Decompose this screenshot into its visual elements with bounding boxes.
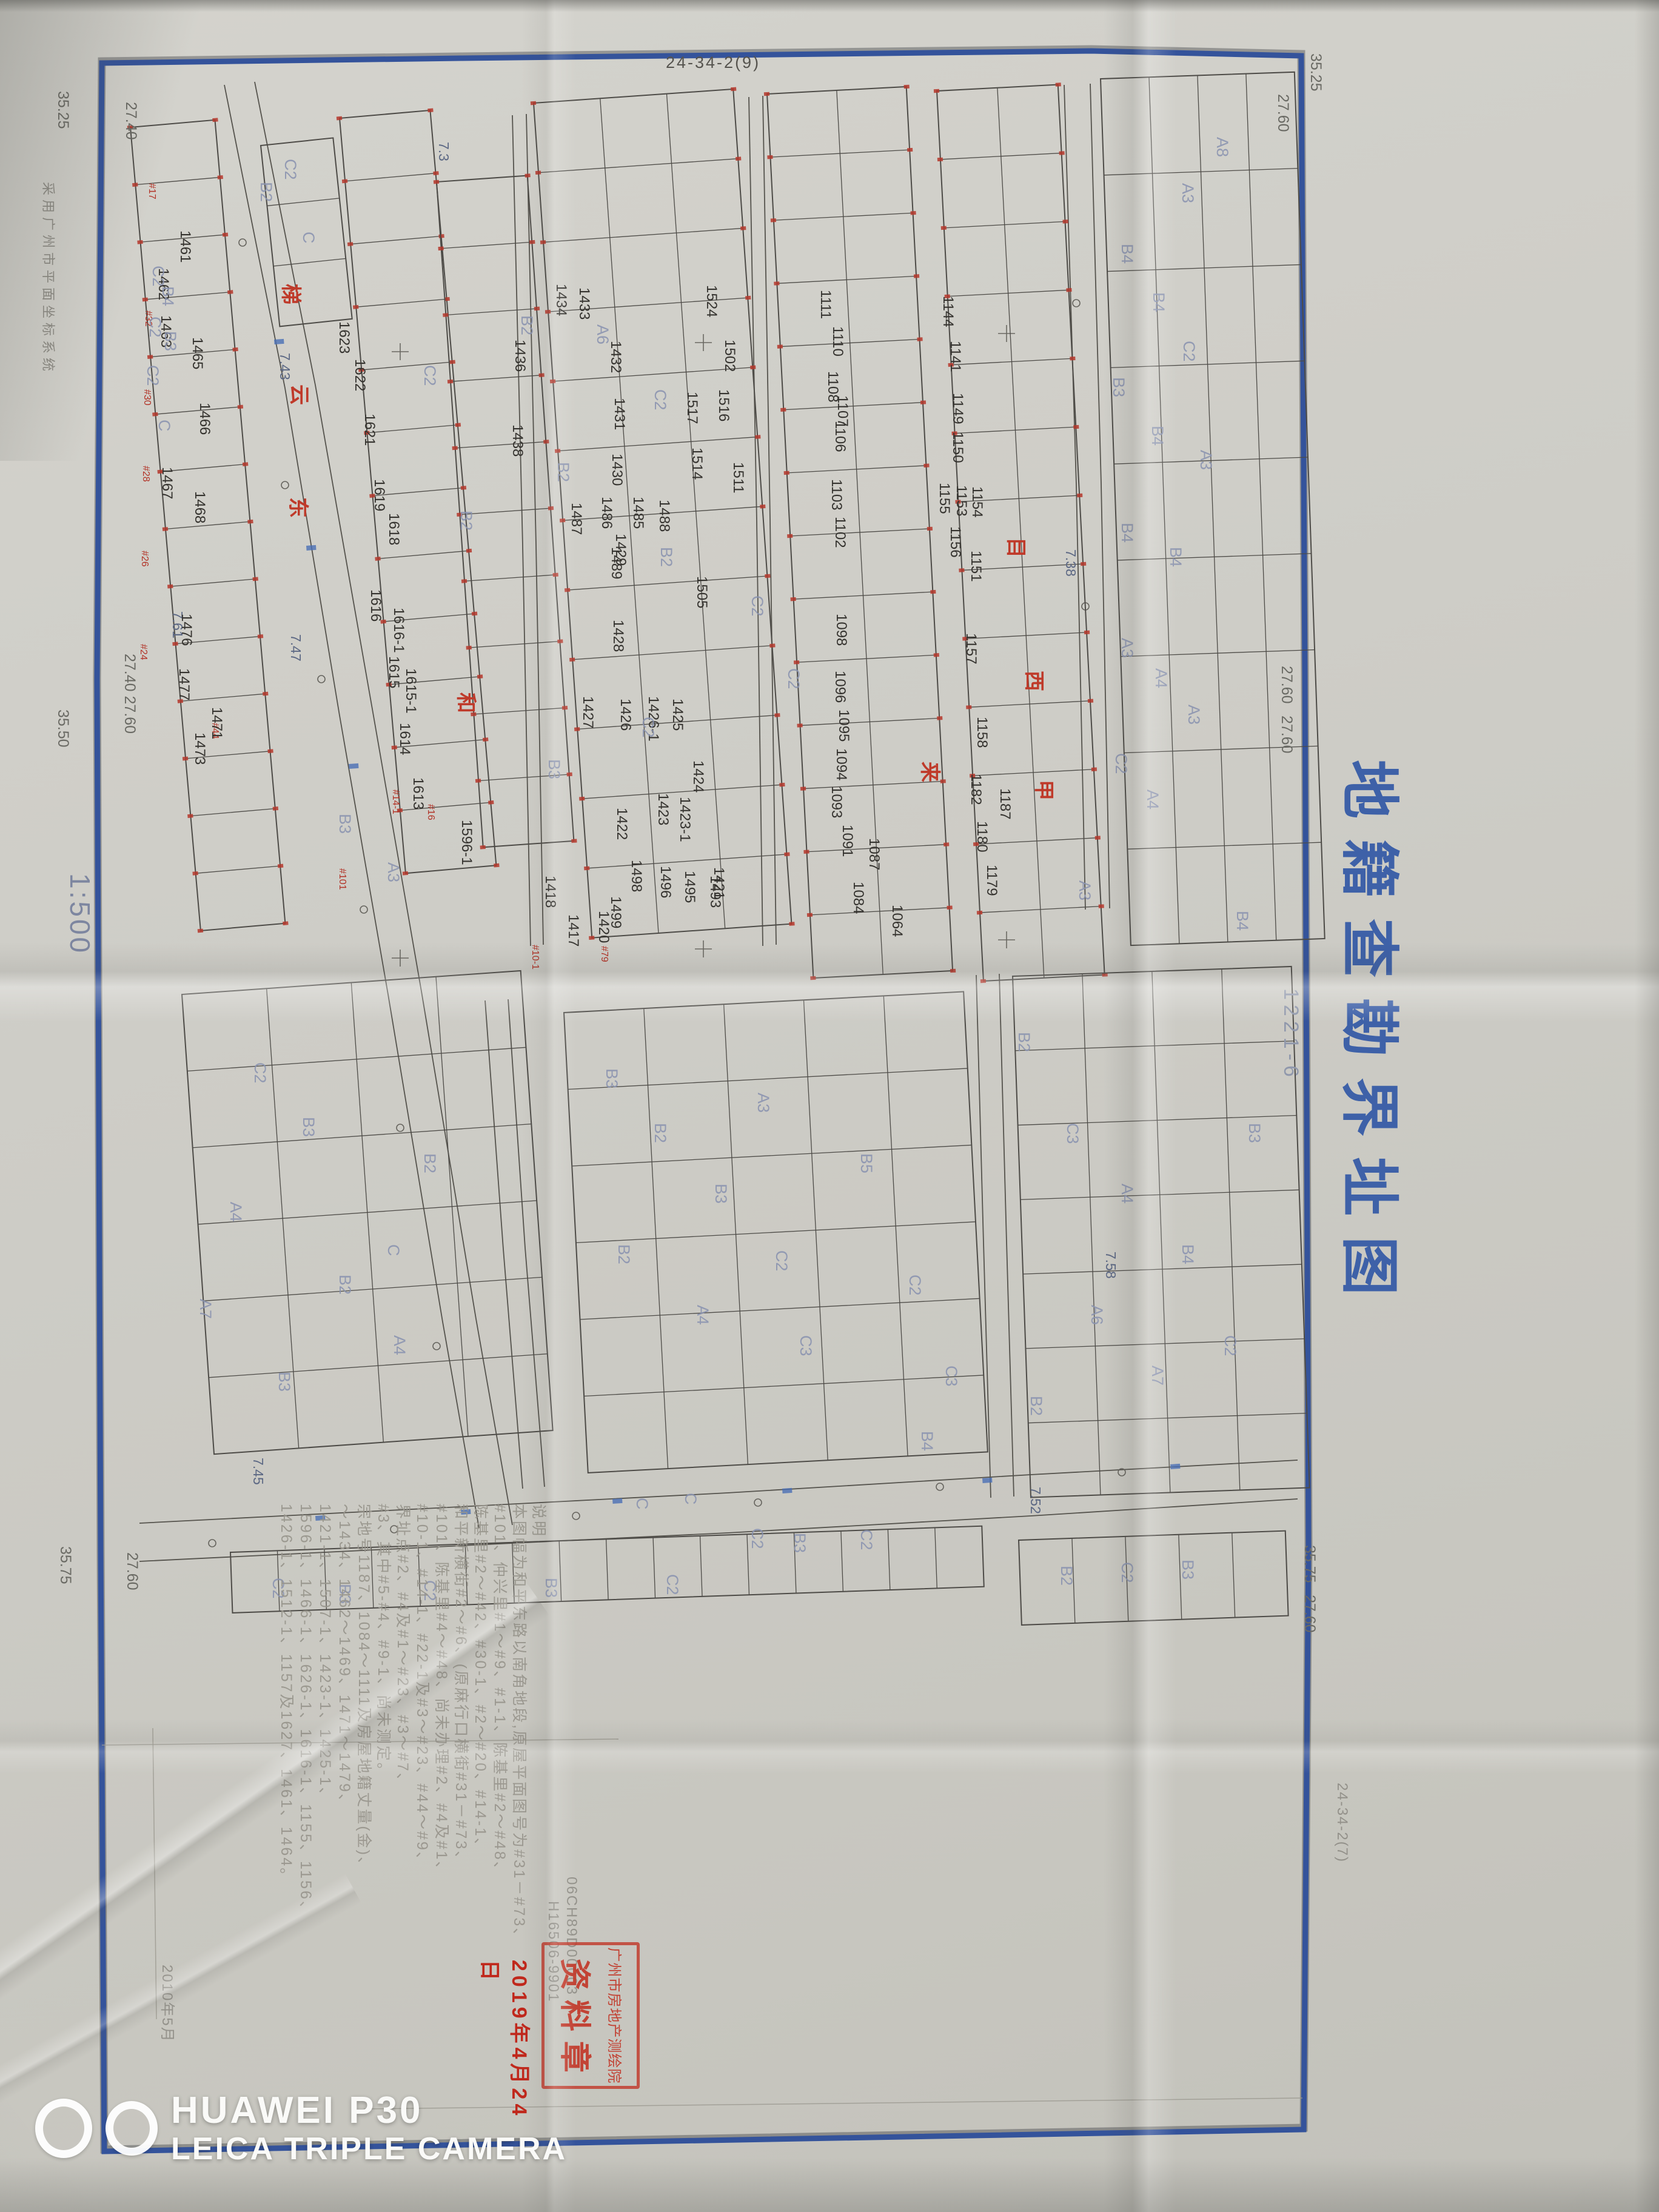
road-edge	[1064, 85, 1085, 910]
boundary-mark	[475, 779, 481, 783]
map-label: 1430	[609, 454, 625, 486]
cadastral-map-svg: 35.2527.4035.5027.40 27.6035.7527.6035.2…	[0, 0, 1659, 2212]
boundary-mark	[934, 89, 939, 93]
map-sheet-code: 1221-6	[1278, 988, 1302, 1128]
map-label: #79	[599, 946, 609, 962]
map-label: 1471	[209, 707, 225, 739]
survey-note-line: #101、仲兴里#1～#9、#1-1、陈基里#2～#48、	[491, 1504, 508, 1879]
boundary-mark	[142, 298, 148, 302]
boundary-mark	[152, 412, 158, 417]
boundary-mark	[238, 405, 243, 409]
boundary-mark	[1091, 767, 1097, 771]
map-label: A8	[1213, 137, 1232, 157]
boundary-mark	[438, 234, 444, 238]
boundary-mark	[480, 845, 486, 850]
map-label: C2	[1180, 341, 1198, 362]
map-label: C2	[748, 1528, 766, 1549]
map-label: 1110	[829, 326, 846, 357]
map-label: #10-1	[530, 945, 540, 970]
map-label: 1157	[963, 633, 979, 665]
map-label: C2	[639, 717, 657, 738]
map-label: #14-1	[390, 789, 401, 814]
map-label: #16	[426, 804, 436, 820]
boundary-mark	[447, 380, 453, 384]
boundary-mark	[552, 573, 558, 577]
boundary-mark	[438, 246, 443, 250]
stamp-label: 资料章	[555, 1949, 600, 2082]
map-label: B2	[1027, 1396, 1045, 1416]
map-label: C2	[663, 1574, 682, 1595]
road-edge	[999, 974, 1014, 1496]
map-label: 1141	[947, 341, 964, 372]
road-mark	[1170, 1464, 1181, 1469]
map-label: B4	[1179, 1244, 1197, 1264]
survey-notes: 说明本图幅为和平东路以南角地段,原屋平面图号为#31－#73、#101、仲兴里#…	[278, 1504, 547, 1945]
map-label: 1438	[509, 424, 526, 457]
boundary-mark	[765, 574, 770, 578]
boundary-mark	[550, 380, 555, 384]
boundary-mark	[1095, 836, 1101, 839]
map-label: 27.40	[122, 102, 139, 140]
boundary-mark	[947, 906, 952, 910]
map-label: 1498	[628, 860, 645, 892]
road-edge	[749, 97, 763, 946]
boundary-mark	[977, 911, 982, 914]
map-label: 1431	[611, 398, 628, 430]
road-dot	[239, 239, 246, 246]
boundary-mark	[466, 549, 472, 553]
survey-note-line: 宗地号1187、1084～1111及房屋地籍丈量(金)、	[355, 1504, 372, 1874]
boundary-mark	[937, 716, 942, 720]
boundary-mark	[132, 183, 138, 187]
map-label: B2	[518, 315, 536, 335]
boundary-mark	[375, 557, 380, 561]
boundary-mark	[342, 179, 347, 183]
map-label: 1514	[689, 447, 705, 480]
map-label: B3	[336, 814, 354, 834]
parcel-block	[764, 85, 956, 980]
map-label: 1151	[968, 551, 984, 582]
map-label: 1493	[707, 876, 723, 908]
boundary-mark	[137, 240, 142, 244]
road-edge	[1090, 84, 1110, 908]
map-label: C3	[942, 1366, 960, 1387]
map-label: A4	[1152, 668, 1170, 688]
road-dot	[1073, 300, 1080, 307]
boundary-mark	[771, 218, 776, 222]
boundary-mark	[941, 226, 947, 230]
map-label: B4	[1118, 244, 1136, 264]
boundary-mark	[232, 347, 238, 352]
map-label: A3	[1179, 183, 1197, 203]
boundary-mark	[923, 464, 929, 468]
map-label: 1461	[177, 230, 193, 263]
map-label: C2	[785, 668, 803, 689]
map-label: 1619	[371, 479, 387, 511]
map-label: B2	[457, 511, 475, 531]
map-label: 云	[287, 384, 310, 405]
road-dot	[281, 481, 289, 489]
map-label: 24-34-2(9)	[666, 53, 760, 72]
map-label: 1096	[832, 671, 848, 703]
map-label: 35.75	[1301, 1545, 1318, 1583]
map-label: 1621	[361, 414, 378, 446]
map-label: C2	[857, 1529, 876, 1550]
boundary-mark	[907, 148, 913, 152]
boundary-mark	[774, 713, 780, 717]
map-label: 1144	[940, 296, 956, 327]
boundary-mark	[258, 634, 263, 638]
boundary-mark	[147, 355, 153, 359]
boundary-mark	[784, 853, 789, 857]
map-label: 西	[1022, 671, 1045, 691]
boundary-mark	[560, 518, 565, 523]
boundary-mark	[565, 588, 570, 592]
map-label: 7.43	[277, 353, 293, 380]
map-label: 1623	[336, 321, 352, 354]
map-label: 1615	[386, 656, 402, 688]
map-label: C2	[651, 389, 669, 411]
map-label: 1485	[630, 497, 646, 529]
parcel-block	[434, 173, 577, 849]
map-label: 1084	[850, 882, 866, 914]
boundary-mark	[353, 305, 358, 309]
boundary-mark	[243, 462, 248, 466]
map-title-char: 查	[1330, 917, 1409, 980]
boundary-mark	[750, 366, 756, 370]
survey-note-line: 陈基里#2～#42、#30-1、#2～#20、#14-1、	[472, 1504, 489, 1855]
map-label: 梯	[279, 284, 302, 304]
boundary-mark	[548, 506, 554, 511]
map-label: 1596-1	[458, 820, 475, 865]
boundary-mark	[774, 281, 779, 285]
map-label: 东	[286, 497, 310, 518]
map-label: A4	[227, 1202, 245, 1222]
map-label: 27.40 27.60	[121, 654, 138, 734]
map-title-char: 勘	[1330, 996, 1409, 1059]
boundary-mark	[531, 101, 536, 106]
map-label: 1187	[997, 788, 1013, 820]
lens-ring-icon	[35, 2099, 92, 2158]
boundary-mark	[760, 504, 765, 509]
map-label: 1427	[580, 696, 596, 728]
boundary-mark	[557, 639, 563, 643]
watermark-camera: LEICA TRIPLE CAMERA	[171, 2131, 567, 2167]
map-label: 1094	[833, 748, 850, 780]
boundary-mark	[1059, 151, 1064, 155]
boundary-mark	[187, 814, 193, 818]
map-label: C2	[748, 595, 766, 617]
survey-note-line: #101、陈基里#4～#48、尚未办理#2、#4及#1、	[433, 1504, 450, 1879]
boundary-mark	[736, 156, 741, 161]
map-label: C	[384, 1244, 403, 1256]
map-label: 1095	[836, 709, 852, 742]
map-label: 1434	[553, 284, 569, 316]
survey-note-line: 1596-1、1466-1、1626-1、1616-1、1155、1156、	[297, 1504, 314, 1918]
boundary-mark	[212, 118, 218, 122]
map-label: 1153	[953, 485, 970, 517]
map-label: 1154	[969, 486, 985, 518]
boundary-mark	[764, 92, 769, 96]
photo-of-cadastral-map: 35.2527.4035.5027.40 27.6035.7527.6035.2…	[0, 0, 1659, 2212]
map-label: A6	[1088, 1305, 1106, 1325]
boundary-mark	[540, 240, 546, 244]
map-label: B4	[1167, 547, 1185, 567]
boundary-mark	[1088, 699, 1093, 703]
map-label: 1106	[832, 421, 848, 452]
boundary-mark	[461, 486, 466, 490]
map-label: 1425	[669, 699, 686, 731]
road-dot	[397, 1124, 404, 1131]
map-label: 1093	[828, 786, 845, 818]
survey-note-line: 界址点#2、#4及#1～#23、#3～#7、	[394, 1504, 411, 1790]
boundary-mark	[273, 806, 278, 811]
boundary-mark	[810, 976, 816, 980]
map-label: B3	[1245, 1123, 1264, 1143]
boundary-mark	[192, 871, 198, 876]
map-label: B3	[1110, 377, 1128, 397]
boundary-mark	[535, 170, 541, 175]
map-label: 1486	[598, 497, 615, 529]
boundary-mark	[477, 674, 483, 679]
map-label: B4	[1148, 426, 1167, 446]
boundary-mark	[803, 850, 809, 854]
boundary-mark	[920, 400, 926, 404]
map-label: 1179	[984, 865, 1000, 896]
boundary-mark	[392, 745, 397, 749]
map-label: #17	[147, 183, 157, 199]
boundary-mark	[461, 579, 467, 583]
map-label: 采用广州市平面坐标系统	[41, 182, 56, 375]
lens-ring-icon-2	[106, 2101, 158, 2156]
map-label: A3	[384, 862, 403, 882]
map-label: B3	[1179, 1560, 1197, 1580]
map-label: B2	[257, 182, 275, 202]
map-title-char: 地	[1330, 758, 1409, 821]
boundary-mark	[780, 408, 786, 412]
survey-note-line: 本图幅为和平东路以南角地段,原屋平面图号为#31－#73、	[511, 1504, 528, 1945]
boundary-mark	[198, 929, 203, 933]
map-label: 1155	[936, 483, 953, 514]
boundary-mark	[584, 866, 589, 871]
boundary-mark	[555, 449, 560, 453]
map-label: 2010年5月	[159, 1965, 175, 2043]
map-label: B4	[1150, 292, 1168, 312]
map-label: A4	[1144, 789, 1162, 809]
road-edge	[508, 999, 545, 1487]
map-label: B2	[554, 462, 572, 482]
map-label: A7	[1148, 1366, 1167, 1386]
stamp-organization: 广州市房地产测绘院	[605, 1948, 626, 2084]
map-label: 1618	[386, 513, 402, 545]
map-label: 1423	[655, 793, 671, 825]
map-label: C3	[797, 1335, 815, 1356]
boundary-mark	[980, 979, 986, 983]
boundary-mark	[434, 180, 439, 184]
survey-note-line: 1426-1、1512-1、1157及1627、1461、1464。	[278, 1504, 295, 1885]
map-label: C	[300, 232, 318, 244]
road-mark	[612, 1498, 623, 1504]
boundary-mark	[1062, 220, 1068, 223]
map-label: B3	[300, 1117, 318, 1137]
map-label: B4	[1233, 911, 1252, 931]
boundary-mark	[525, 173, 530, 178]
map-label: 1428	[610, 620, 626, 652]
boundary-mark	[1081, 562, 1086, 566]
survey-note-line: ～1434、1462～1469、1471～1479、	[336, 1504, 353, 1811]
map-label: 1150	[950, 432, 966, 463]
map-label: 7.45	[250, 1458, 266, 1485]
boundary-mark	[966, 705, 971, 709]
map-label: B3	[791, 1533, 809, 1553]
map-label: 35.50	[55, 709, 72, 748]
parcel-block	[337, 109, 500, 876]
boundary-mark	[545, 310, 551, 314]
grid-crosses	[392, 325, 1015, 967]
map-label: A3	[1197, 450, 1215, 470]
map-label: 1473	[192, 732, 208, 765]
parcel-block	[1013, 967, 1310, 1498]
map-label: 1466	[196, 403, 213, 435]
map-label: C2	[281, 159, 300, 180]
boundary-mark	[449, 360, 455, 364]
map-label: 1158	[974, 717, 990, 748]
boundary-mark	[927, 527, 933, 531]
boundary-mark	[914, 274, 919, 278]
map-label: 1098	[833, 614, 850, 646]
map-label: B2	[1015, 1032, 1033, 1052]
boundary-mark	[797, 723, 802, 727]
map-title: 地籍查勘界址图	[1338, 749, 1401, 1305]
map-label: B3	[545, 759, 563, 779]
map-label: C2	[149, 266, 167, 287]
road-mark	[982, 1478, 993, 1483]
boundary-mark	[529, 240, 535, 244]
boundary-mark	[483, 737, 488, 742]
map-label: 1496	[657, 866, 674, 898]
map-label: B3	[542, 1578, 560, 1598]
parcel-blocks	[127, 72, 1325, 1625]
map-label: 1422	[614, 808, 630, 840]
map-label: C2	[144, 365, 162, 386]
map-label: B2	[336, 1275, 354, 1295]
map-label: 1616-1	[390, 608, 407, 653]
map-label: C2	[1221, 1335, 1239, 1356]
map-label: C	[682, 1493, 700, 1505]
map-label: #28	[141, 466, 151, 482]
boundary-mark	[223, 233, 228, 237]
boundary-mark	[1077, 494, 1082, 497]
map-label: 24-34-2(7)	[1334, 1783, 1350, 1863]
road-dot	[936, 1483, 943, 1490]
map-label: 1433	[576, 287, 592, 320]
map-label: B4	[918, 1431, 936, 1451]
map-label: B2	[1057, 1566, 1076, 1586]
boundary-mark	[740, 226, 746, 230]
map-label: 1613	[410, 777, 426, 809]
map-label: 目	[1004, 537, 1027, 558]
map-label: 1087	[866, 838, 882, 870]
boundary-mark	[494, 863, 499, 868]
map-label: 1505	[694, 576, 710, 608]
map-label: C2	[1112, 753, 1130, 774]
map-label: 1488	[656, 500, 672, 532]
map-label: 1467	[159, 467, 175, 499]
map-labels: 35.2527.4035.5027.40 27.6035.7527.6035.2…	[41, 53, 1350, 2043]
map-label: 1517	[684, 392, 700, 424]
road-dot	[572, 1512, 580, 1520]
map-label: B3	[161, 331, 179, 351]
map-label: 7.58	[1103, 1252, 1119, 1279]
map-label: 7.38	[1063, 549, 1079, 577]
map-label: #26	[139, 551, 150, 567]
map-label: 35.25	[1307, 53, 1324, 92]
map-label: A3	[1185, 705, 1203, 725]
road-dot	[209, 1540, 216, 1547]
boundary-mark	[755, 435, 760, 439]
archive-stamp: 广州市房地产测绘院 资料章	[541, 1942, 640, 2089]
boundary-mark	[767, 155, 773, 159]
boundary-mark	[163, 527, 168, 531]
map-label: C2	[773, 1250, 791, 1272]
map-label: B2	[651, 1123, 669, 1143]
boundary-mark	[183, 757, 188, 761]
boundary-mark	[943, 842, 949, 846]
road-mark	[782, 1488, 793, 1493]
map-label: 1502	[722, 340, 738, 372]
map-label: #24	[138, 644, 149, 660]
map-label: 1424	[690, 760, 706, 793]
map-label: 27.60	[1278, 666, 1295, 704]
boundary-mark	[218, 175, 223, 179]
boundary-mark	[263, 692, 268, 696]
map-label: 1180	[974, 821, 990, 853]
map-label: 27.60	[124, 1552, 141, 1590]
map-label: B5	[857, 1153, 876, 1173]
map-title-char: 界	[1330, 1076, 1409, 1139]
road-dot	[433, 1342, 440, 1350]
survey-note-line: 和平新横街#2～#6、(原麻行口横街#31－#73、	[452, 1504, 469, 1868]
boundary-mark	[787, 534, 793, 538]
map-label: 1426	[617, 699, 634, 731]
map-label: 1489	[608, 547, 625, 579]
boundary-mark	[800, 786, 806, 790]
map-label: 1516	[716, 389, 732, 421]
map-label: 1182	[968, 774, 984, 805]
map-label: 1418	[542, 876, 558, 908]
boundary-mark	[1056, 82, 1061, 86]
map-label: 1149	[950, 393, 966, 424]
boundary-mark	[589, 936, 594, 940]
map-label: 1103	[828, 479, 845, 511]
map-label: 35.25	[55, 91, 72, 129]
boundary-mark	[769, 643, 775, 648]
boundary-mark	[917, 337, 922, 341]
map-label: 7.3	[436, 142, 452, 161]
boundary-mark	[427, 109, 433, 113]
map-label: 7.52	[1028, 1487, 1044, 1514]
parcel-block	[127, 118, 289, 933]
map-title-char: 址	[1330, 1155, 1409, 1218]
map-label: 1423-1	[677, 797, 693, 842]
map-label: 1465	[189, 337, 206, 369]
boundary-mark	[472, 612, 477, 616]
map-label: A6	[594, 324, 612, 344]
map-label: A4	[694, 1305, 712, 1325]
boundary-mark	[1099, 904, 1104, 908]
road-mark	[306, 545, 317, 551]
map-label: 1476	[178, 614, 195, 646]
